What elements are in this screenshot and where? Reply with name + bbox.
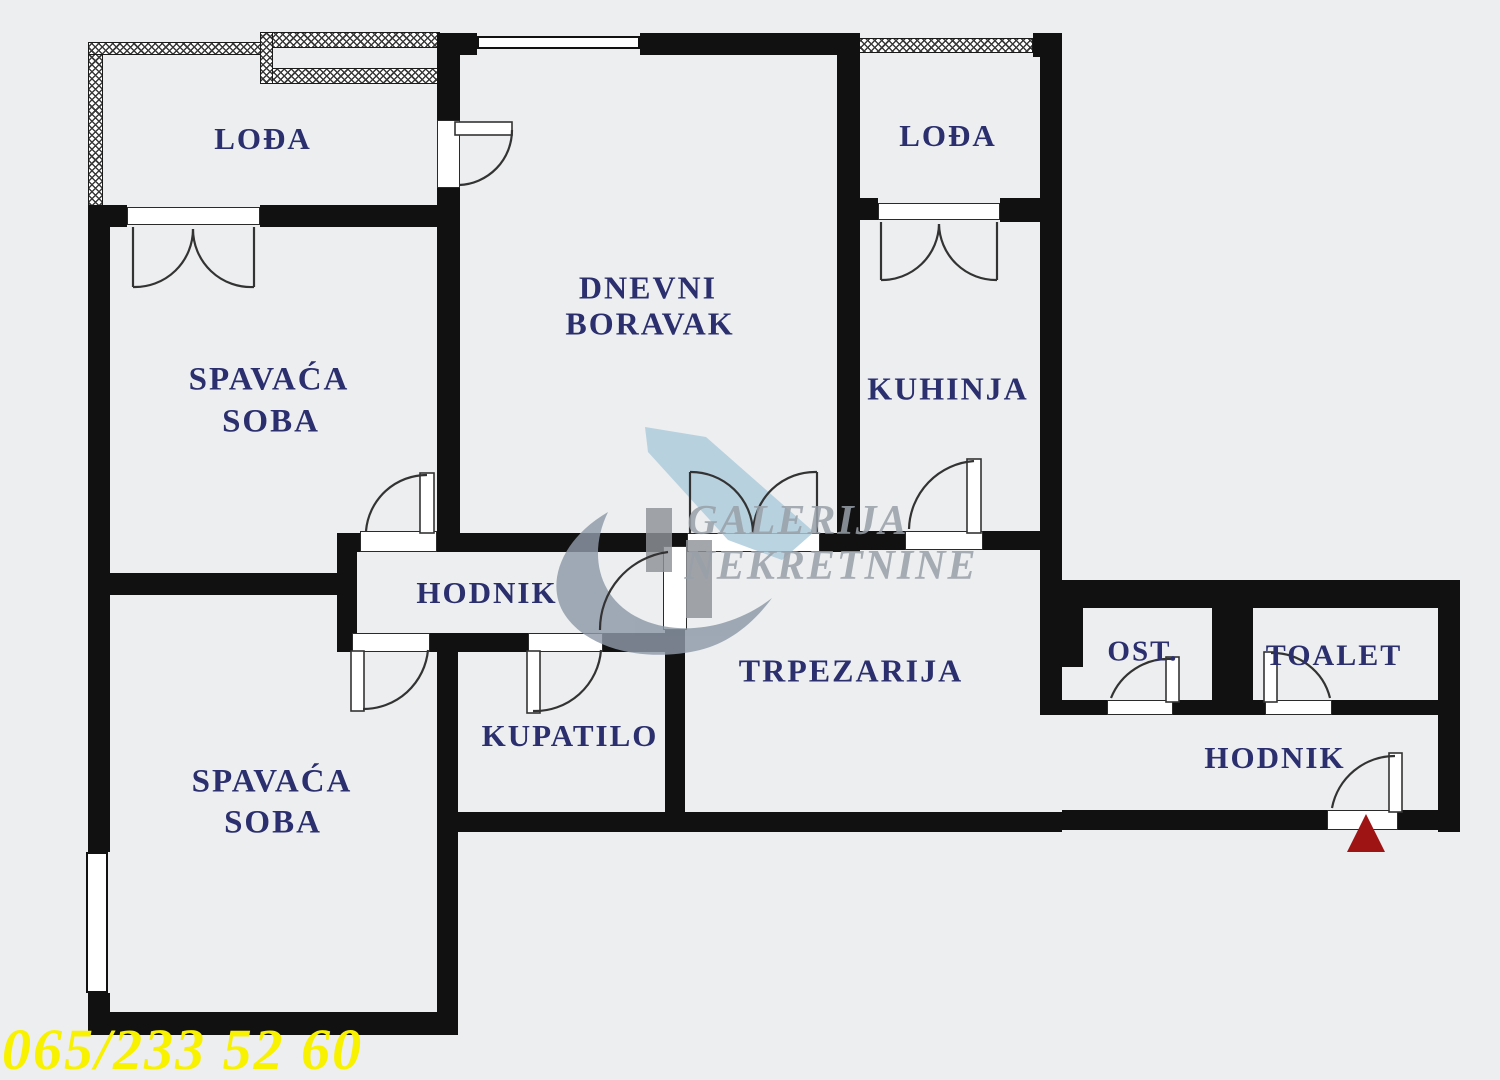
- wall-loggia1-bottom-a: [88, 205, 127, 227]
- wall-bottom-right-a: [1062, 810, 1327, 830]
- room-label-trpezarija: TRPEZARIJA: [739, 653, 963, 690]
- room-label-hodnik-center: HODNIK: [416, 575, 557, 611]
- loggia-left-top-hatch: [88, 42, 265, 55]
- wall-left-exterior: [88, 205, 110, 852]
- wall-top-right-extension: [1040, 580, 1460, 608]
- window-dnevni-top: [477, 36, 640, 49]
- wall-kitchen-bottom-b: [983, 531, 1062, 550]
- door-leaf: [455, 122, 512, 135]
- floorplan-canvas: LOĐA LOĐA DNEVNI BORAVAK KUHINJA SPAVAĆA…: [0, 0, 1500, 1080]
- room-label-hodnik-entry: HODNIK: [1204, 740, 1345, 776]
- wall-ost-bottom-b: [1173, 700, 1212, 715]
- room-label-loda-right: LOĐA: [899, 118, 997, 154]
- door-arc: [366, 475, 427, 531]
- door-arc: [459, 130, 512, 185]
- room-label-spavaca-top-line1: SPAVAĆA: [189, 362, 350, 399]
- loggia-left-outer-hatch: [260, 32, 440, 48]
- room-label-kupatilo: KUPATILO: [482, 718, 659, 754]
- opening-toalet-door: [1265, 700, 1332, 715]
- opening-ost-door: [1107, 700, 1173, 715]
- wall-loggia1-bottom-b: [260, 205, 460, 227]
- wall-loggia2-bottom-b: [1000, 198, 1062, 222]
- window-left-wall: [86, 852, 108, 993]
- opening-loggia1-dnevni-door: [437, 120, 460, 188]
- loggia-left-inner-hatch: [263, 68, 440, 84]
- wall-top-a: [437, 33, 477, 55]
- wall-top-b: [640, 33, 860, 55]
- wall-corridor-top-b: [437, 533, 687, 552]
- door-arc: [133, 229, 193, 287]
- wall-toalet-bottom-a: [1253, 700, 1265, 715]
- wall-bedroom1-dnevni-divider: [437, 188, 460, 535]
- door-arc: [363, 650, 428, 709]
- room-label-toalet: TOALET: [1266, 639, 1403, 673]
- room-label-spavaca-bottom-line1: SPAVAĆA: [192, 764, 353, 801]
- opening-kupatilo-door: [528, 633, 603, 652]
- wall-bottom-mid: [437, 812, 1062, 832]
- wall-bedroom-divider: [88, 573, 357, 595]
- door-arc: [939, 224, 997, 280]
- watermark-text-line2: NEKRETNINE: [684, 542, 977, 590]
- room-label-spavaca-bottom-line2: SOBA: [224, 805, 322, 842]
- room-label-spavaca-top-line2: SOBA: [222, 404, 320, 441]
- door-leaf: [527, 651, 540, 713]
- opening-trpezarija-door: [663, 546, 687, 630]
- door-leaf: [420, 473, 434, 533]
- loggia-left-hatch-connector: [260, 32, 273, 84]
- wall-ost-toalet-divider: [1212, 608, 1253, 715]
- door-arc: [909, 461, 974, 529]
- wall-ost-bottom-a: [1062, 700, 1107, 715]
- wall-ost-left-block: [1062, 608, 1083, 667]
- wall-bedroom2-right: [437, 650, 458, 1035]
- door-leaf: [967, 459, 981, 533]
- room-label-loda-left: LOĐA: [214, 121, 312, 157]
- room-label-kuhinja: KUHINJA: [867, 371, 1029, 408]
- room-label-dnevni-line2: BORAVAK: [565, 306, 734, 343]
- door-arc: [533, 650, 601, 711]
- wall-loggia2-bottom-a: [837, 198, 878, 220]
- door-arc: [881, 224, 939, 280]
- door-arc: [600, 552, 668, 630]
- door-leaf: [351, 651, 364, 711]
- wall-corridor-bottom-b: [430, 633, 528, 652]
- opening-entrance-door: [1327, 810, 1398, 830]
- wall-loggia1-right-upper: [437, 55, 460, 120]
- wall-toalet-bottom-b: [1332, 700, 1438, 715]
- wall-kupatilo-right: [665, 630, 685, 832]
- wall-right-exterior: [1438, 580, 1460, 832]
- opening-bedroom1-door: [360, 531, 437, 552]
- loggia-left-parapet-hatch: [88, 42, 103, 210]
- watermark-text-line1: GALERIJA: [687, 497, 908, 545]
- room-label-dnevni-line1: DNEVNI: [579, 270, 717, 307]
- door-arc: [193, 229, 254, 287]
- opening-loggia2-double-door: [878, 203, 1000, 220]
- loggia-right-top-hatch: [858, 38, 1033, 53]
- opening-bedroom2-door: [352, 633, 430, 652]
- phone-number: 065/233 52 60: [2, 1016, 363, 1080]
- wall-dnevni-kuhinja-divider: [837, 33, 860, 552]
- opening-loggia1-double-door: [127, 207, 260, 225]
- room-label-ost: OST.: [1107, 636, 1178, 669]
- door-leaf: [1389, 753, 1402, 812]
- wall-top-right-corner: [1033, 33, 1062, 57]
- wall-kitchen-right: [1040, 33, 1062, 715]
